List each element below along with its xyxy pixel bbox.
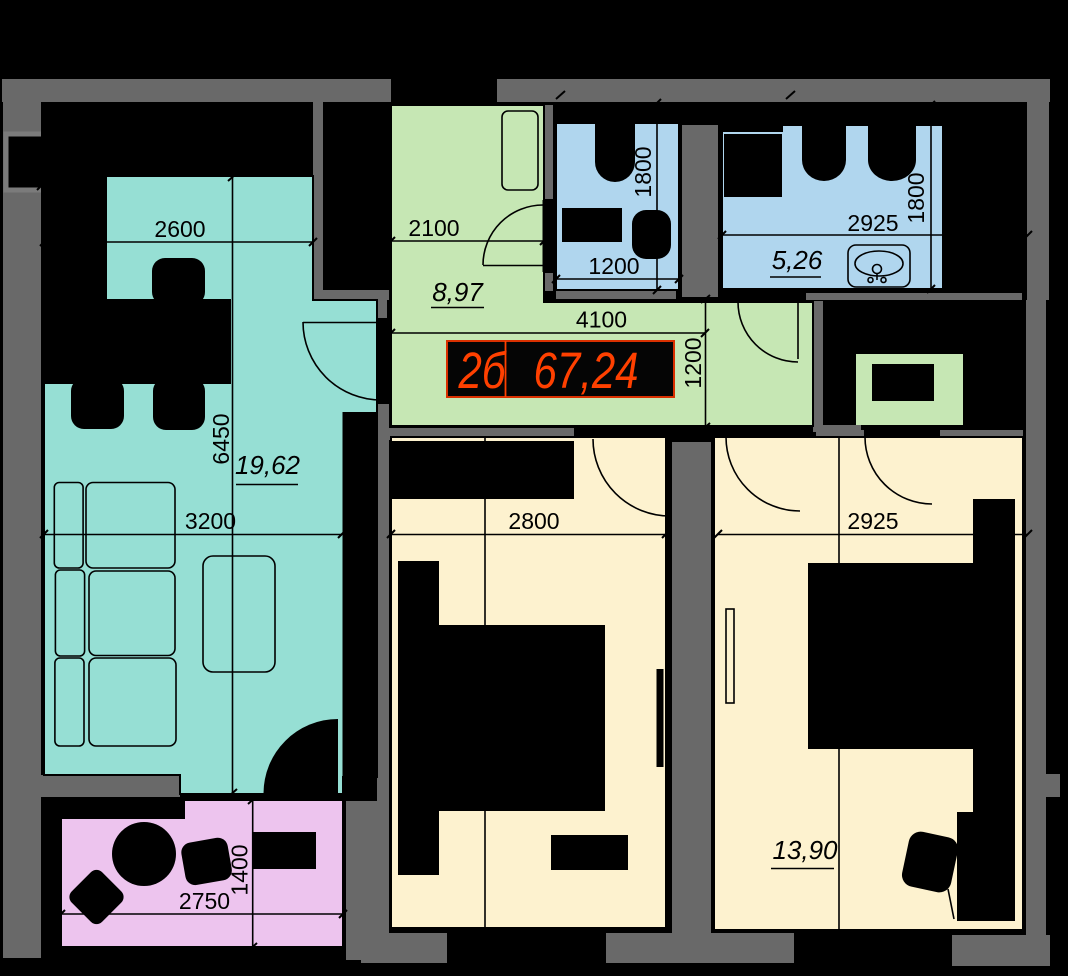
svg-text:3200: 3200 xyxy=(185,508,236,534)
svg-text:1400: 1400 xyxy=(227,844,253,895)
svg-text:1800: 1800 xyxy=(903,172,929,223)
svg-text:1800: 1800 xyxy=(630,146,656,197)
svg-text:2800: 2800 xyxy=(508,508,559,534)
svg-text:2925: 2925 xyxy=(847,210,898,236)
svg-text:67,24: 67,24 xyxy=(533,342,638,399)
svg-text:2750: 2750 xyxy=(179,888,230,914)
svg-text:2600: 2600 xyxy=(154,216,205,242)
svg-text:4100: 4100 xyxy=(576,307,627,333)
svg-text:5,26: 5,26 xyxy=(772,245,823,275)
svg-text:1200: 1200 xyxy=(588,253,639,279)
svg-text:2100: 2100 xyxy=(408,215,459,241)
svg-text:6450: 6450 xyxy=(208,413,234,464)
svg-text:1200: 1200 xyxy=(680,337,706,388)
svg-text:8,97: 8,97 xyxy=(432,277,484,307)
svg-text:13,90: 13,90 xyxy=(772,835,838,865)
svg-text:2б: 2б xyxy=(458,342,507,399)
svg-text:2925: 2925 xyxy=(847,508,898,534)
svg-text:19,62: 19,62 xyxy=(235,450,301,480)
